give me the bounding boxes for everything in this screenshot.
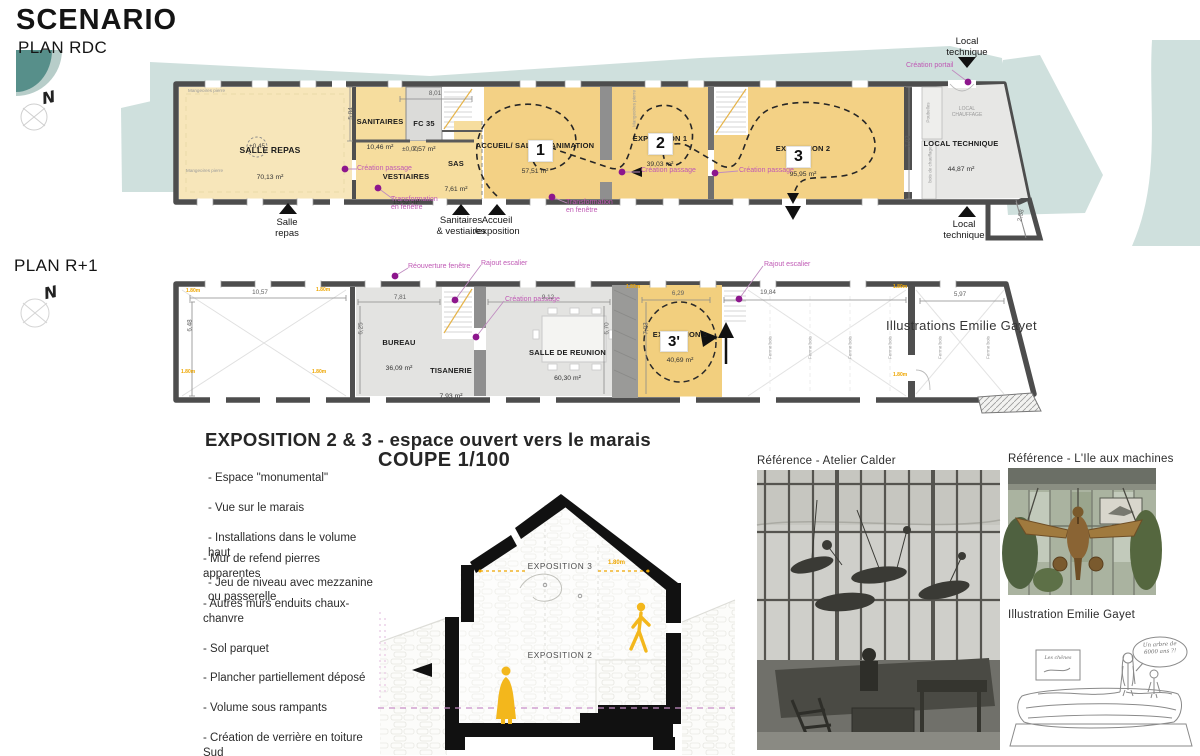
ferme-bois-label: Ferme bois xyxy=(986,330,991,366)
ferme-bois-label: Ferme bois xyxy=(938,330,943,366)
bullet-item: - Création de verrière en toiture Sud xyxy=(203,731,379,756)
pointer-arrow xyxy=(279,203,297,214)
annotation-creation-portail: Création portail xyxy=(906,62,953,70)
height-mark: 1.80m xyxy=(316,287,330,293)
sketch-speech-bubble: Un arbre de 6000 ans ?! xyxy=(1136,641,1185,657)
room-number-3prime: 3' xyxy=(660,331,688,352)
bullet-item: - Vue sur le marais xyxy=(208,501,378,516)
pointer-local-technique-top: Local technique xyxy=(940,36,994,58)
plan-rdc-label: PLAN RDC xyxy=(18,38,107,58)
machines-photo xyxy=(1002,468,1162,595)
dim-912: 9,12 xyxy=(528,294,568,301)
room-number-2: 2 xyxy=(648,133,673,155)
dim-584: 5,84 xyxy=(348,99,355,129)
pointer-arrow xyxy=(488,204,506,215)
height-mark: 1.80m xyxy=(312,369,326,375)
mangeoires-note: Mangeoires pierre xyxy=(188,88,225,93)
page-title: SCENARIO xyxy=(16,4,177,37)
plan-r1-label: PLAN R+1 xyxy=(14,256,98,276)
mangeoires-note: Mangeoires pierre xyxy=(186,168,223,173)
poubelles-label: Poubelles xyxy=(926,91,931,135)
sketch-frame-label: Les chênes xyxy=(1040,656,1076,662)
dim-703: 7,03 xyxy=(905,127,912,157)
presentation-board: SCENARIO PLAN RDC PLAN R+1 N N SALLE REP… xyxy=(0,0,1200,756)
pointer-accueil: Accueil /exposition xyxy=(469,215,525,237)
dim-625: 6,25 xyxy=(358,314,365,344)
ferme-bois-label: Ferme bois xyxy=(888,330,893,366)
refend-wall xyxy=(612,285,638,398)
pointer-local-technique-bottom: Local technique xyxy=(934,219,994,241)
section-height-mark: 1.80m xyxy=(608,560,625,566)
calder-photo xyxy=(757,470,1000,750)
annotation-transformation-fenetre: Transformation en fenêtre xyxy=(566,199,638,216)
dim-670: 6,70 xyxy=(604,314,611,344)
height-mark: 1.80m xyxy=(893,284,907,290)
height-mark: 1.80m xyxy=(186,288,200,294)
ferme-bois-label: Ferme bois xyxy=(768,330,773,366)
bullet-item: - Espace "monumental" xyxy=(208,471,378,486)
dim-629: 6,29 xyxy=(658,290,698,297)
annotation-reouverture-fenetre: Réouverture fenêtre xyxy=(408,263,470,271)
room-label-bureau: BUREAU 36,09 m² xyxy=(366,320,432,390)
room-number-3: 3 xyxy=(786,146,811,168)
pointer-arrow xyxy=(958,57,976,68)
pointer-arrow xyxy=(452,204,470,215)
coupe-title: COUPE 1/100 xyxy=(378,449,510,472)
annotation-rajout-escalier: Rajout escalier xyxy=(481,260,527,268)
dim-781: 7,81 xyxy=(380,294,420,301)
section-title: EXPOSITION 2 & 3 - espace ouvert vers le… xyxy=(205,429,651,451)
ferme-bois-label: Ferme bois xyxy=(808,330,813,366)
bullet-list-2: - Mur de refend pierres apparentes - Aut… xyxy=(203,537,379,756)
dim-801: 8,01 xyxy=(415,90,455,97)
room-label-reunion: SALLE DE REUNION 60,30 m² xyxy=(520,330,615,400)
level-marker: ±0,00 xyxy=(390,146,430,153)
bullet-item: - Plancher partiellement déposé xyxy=(203,671,379,686)
bullet-item: - Autres murs enduits chaux-chanvre xyxy=(203,597,379,627)
height-mark: 1.80m xyxy=(893,372,907,378)
annotation-creation-passage: Création passage xyxy=(357,165,412,173)
bullet-item: - Mur de refend pierres apparentes xyxy=(203,552,379,582)
caption-machines: Référence - L'Ile aux machines xyxy=(1008,453,1174,465)
compass-icon xyxy=(21,299,49,327)
bois-chauffage-label: bois de chauffage xyxy=(928,137,933,193)
dim-703-r1: 7,03 xyxy=(643,314,650,344)
dim-1057: 10,57 xyxy=(240,289,280,296)
section-label-expo3: EXPOSITION 3 xyxy=(520,561,600,571)
height-mark: 1.80m xyxy=(626,284,640,290)
dim-648: 6,48 xyxy=(187,311,194,341)
ferme-bois-label: Ferme bois xyxy=(848,330,853,366)
room-number-1: 1 xyxy=(528,140,553,162)
annotation-creation-passage: Création passage xyxy=(641,167,696,175)
caption-illustration: Illustration Emilie Gayet xyxy=(1008,609,1135,621)
bullet-item: - Volume sous rampants xyxy=(203,701,379,716)
level-marker: +0,45 xyxy=(237,143,277,150)
annotation-creation-passage: Création passage xyxy=(739,167,794,175)
caption-calder: Référence - Atelier Calder xyxy=(757,455,896,467)
coupe-section xyxy=(378,494,735,755)
pointer-salle-repas: Salle repas xyxy=(262,217,312,239)
bullet-item: - Sol parquet xyxy=(203,642,379,657)
height-mark: 1.80m xyxy=(181,369,195,375)
illustrations-credit: Illustrations Emilie Gayet xyxy=(886,318,1037,333)
local-chauffage-label: LOCAL CHAUFFAGE xyxy=(938,106,996,118)
room-label-salle-repas: SALLE REPAS 70,13 m² xyxy=(205,127,335,199)
hatched-annex xyxy=(978,393,1041,413)
annotation-rajout-escalier: Rajout escalier xyxy=(764,261,810,269)
pointer-arrow xyxy=(958,206,976,217)
dim-1984: 19,84 xyxy=(748,289,788,296)
dim-597: 5,97 xyxy=(940,291,980,298)
section-label-expo2: EXPOSITION 2 xyxy=(520,650,600,660)
room-label-tisanerie: TISANERIE 7,93 m² xyxy=(428,348,474,418)
